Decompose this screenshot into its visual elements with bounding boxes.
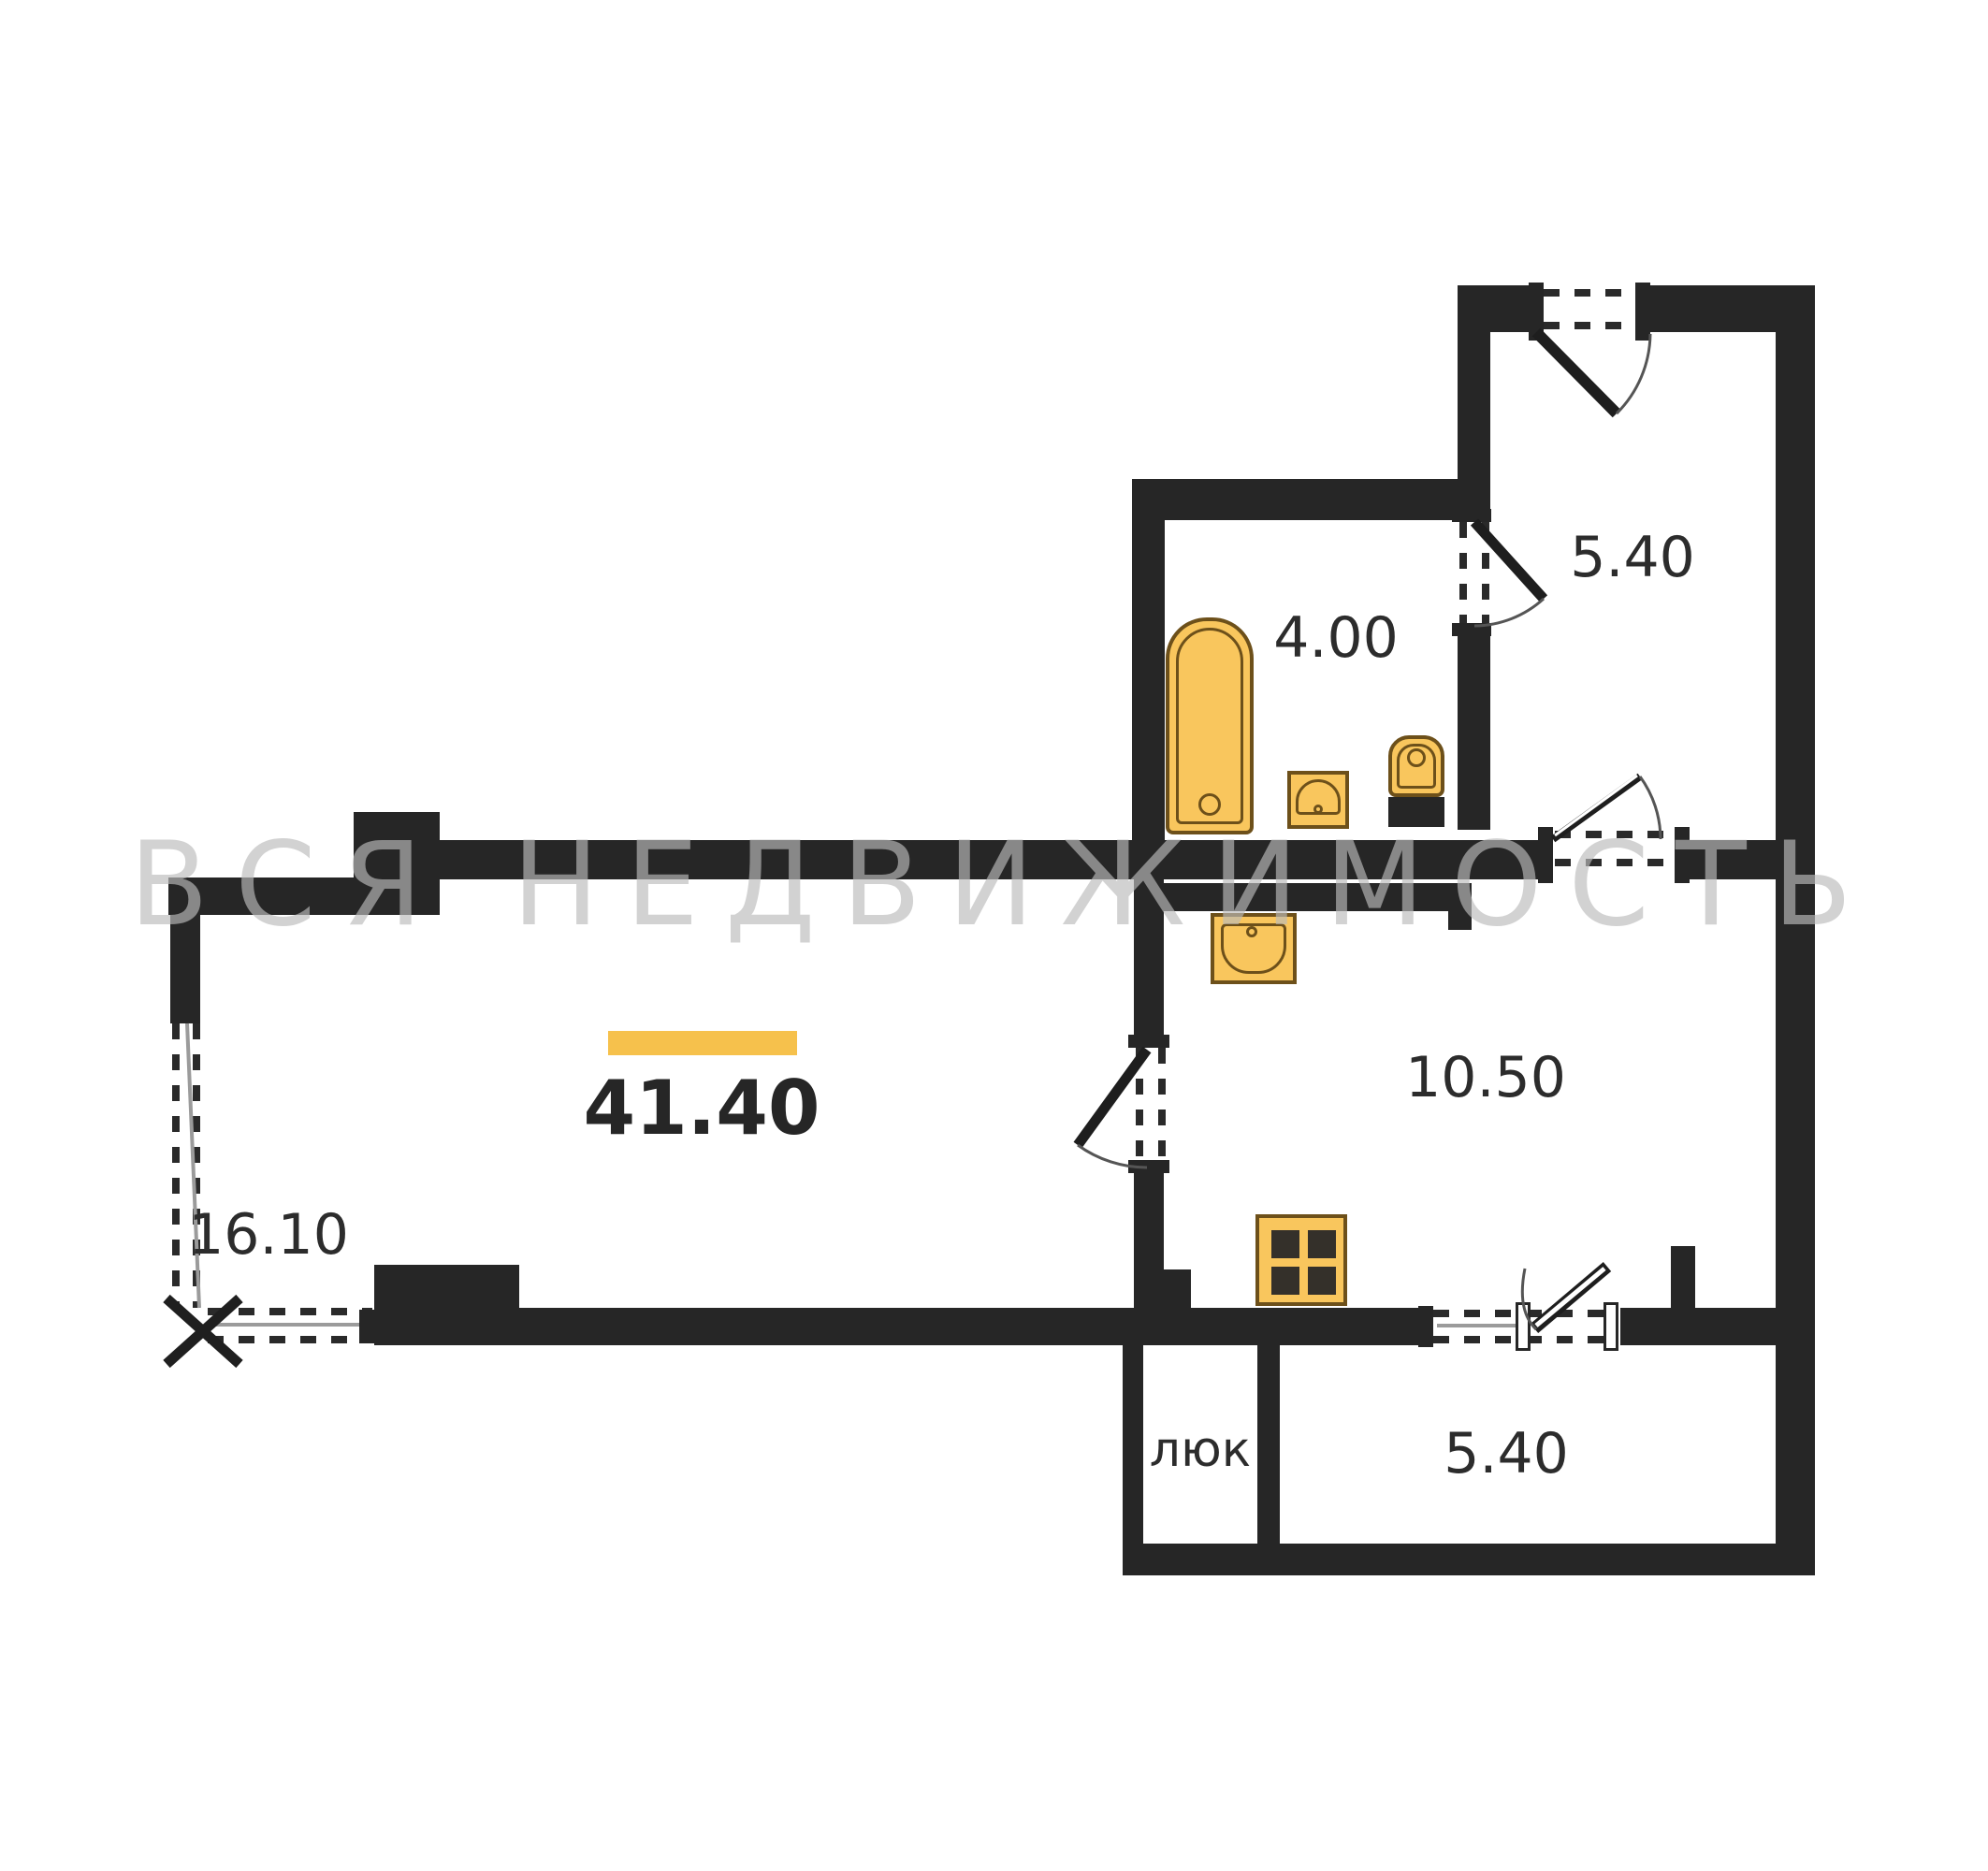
entry-door-dashes: [1544, 289, 1635, 297]
stove-burner: [1308, 1230, 1336, 1258]
wall: [1776, 285, 1815, 1575]
toilet-icon: [1388, 735, 1444, 797]
door-post: [1128, 1035, 1169, 1048]
toilet-flush: [1407, 748, 1426, 767]
window-post: [1418, 1306, 1433, 1347]
door-post: [1635, 283, 1650, 341]
bottom-window-dashes: [208, 1308, 372, 1315]
wall: [419, 840, 1549, 879]
window-post: [1603, 1302, 1618, 1351]
bathtub-drain: [1198, 793, 1221, 816]
wall: [1620, 1308, 1815, 1345]
wall: [1134, 1160, 1164, 1269]
living-door-dashes: [1136, 1048, 1143, 1160]
window-post: [1516, 1302, 1531, 1351]
washbasin-icon: [1287, 771, 1349, 829]
wall: [374, 1265, 519, 1345]
kitchen-sink-icon: [1211, 913, 1297, 984]
wall: [1123, 1544, 1815, 1575]
wall: [1671, 1246, 1695, 1308]
wall: [170, 877, 200, 1020]
balcony-area-label: 5.40: [1366, 1426, 1647, 1482]
wall: [354, 812, 440, 915]
hall-door-dashes: [1555, 831, 1673, 838]
stove-icon: [1255, 1214, 1347, 1306]
total-area-label: 41.40: [524, 1071, 879, 1146]
wall: [1448, 883, 1472, 930]
bathroom-area-label: 4.00: [1196, 610, 1476, 666]
left-room-area-label: 16.10: [128, 1207, 409, 1263]
wall: [1163, 883, 1448, 911]
wall: [1163, 1308, 1431, 1345]
living-door-dashes: [1158, 1048, 1166, 1160]
entry-door-dashes: [1544, 322, 1635, 329]
stove-burner: [1271, 1267, 1299, 1295]
window-post: [170, 1008, 200, 1023]
doors-overlay: [0, 0, 1988, 1871]
washbasin-faucet: [1313, 805, 1323, 814]
door-post: [1452, 509, 1491, 522]
bathroom-door-dashes: [1482, 522, 1489, 623]
bottom-window-dashes: [208, 1336, 372, 1343]
stove-burner: [1271, 1230, 1299, 1258]
door-post: [1128, 1160, 1169, 1173]
wall: [1132, 479, 1165, 844]
wall: [1675, 840, 1776, 879]
kitchen-sink-faucet: [1246, 926, 1257, 937]
stove-burner: [1308, 1267, 1336, 1295]
wall: [1134, 1269, 1191, 1308]
floor-plan: 41.40 5.40 4.00 16.10 10.50 люк 5.40 ВСЯ…: [0, 0, 1988, 1871]
door-post: [1538, 827, 1553, 883]
hall-door-leaf: [1553, 776, 1640, 839]
hall-door-leaf-core: [1555, 776, 1637, 835]
total-area-accent-bar: [608, 1031, 797, 1055]
balcony-door-leaf: [1534, 1267, 1607, 1328]
bathroom-door-dashes: [1459, 522, 1467, 623]
hatch-label: люк: [1107, 1426, 1294, 1474]
wall: [1134, 879, 1164, 1048]
hall-area-label: 5.40: [1492, 529, 1773, 586]
hall-door-arc: [1640, 776, 1661, 839]
left-window-dashes: [172, 1023, 180, 1308]
hall-door-dashes: [1555, 859, 1673, 866]
kitchen-area-label: 10.50: [1345, 1050, 1626, 1106]
door-post: [1529, 283, 1544, 341]
entry-door-leaf: [1536, 332, 1617, 413]
entry-door-arc: [1617, 334, 1650, 413]
door-post: [1675, 827, 1690, 883]
wall: [519, 1308, 1191, 1345]
wall: [1132, 479, 1490, 520]
toilet-tank: [1388, 797, 1444, 827]
window-post: [359, 1310, 374, 1343]
